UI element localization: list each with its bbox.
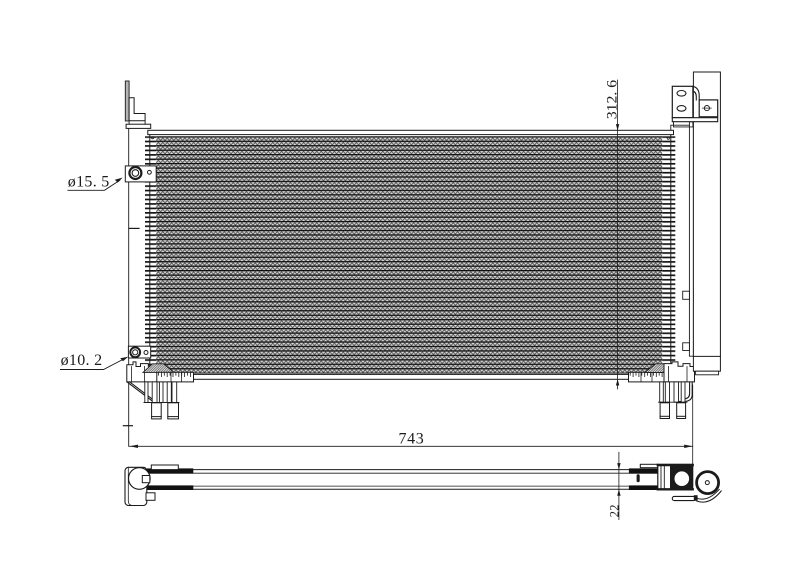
svg-text:743: 743 bbox=[399, 431, 425, 448]
svg-text:22: 22 bbox=[607, 504, 621, 517]
svg-text:ø10. 2: ø10. 2 bbox=[61, 352, 103, 369]
svg-text:ø15. 5: ø15. 5 bbox=[68, 174, 110, 191]
svg-text:312. 6: 312. 6 bbox=[604, 79, 620, 119]
